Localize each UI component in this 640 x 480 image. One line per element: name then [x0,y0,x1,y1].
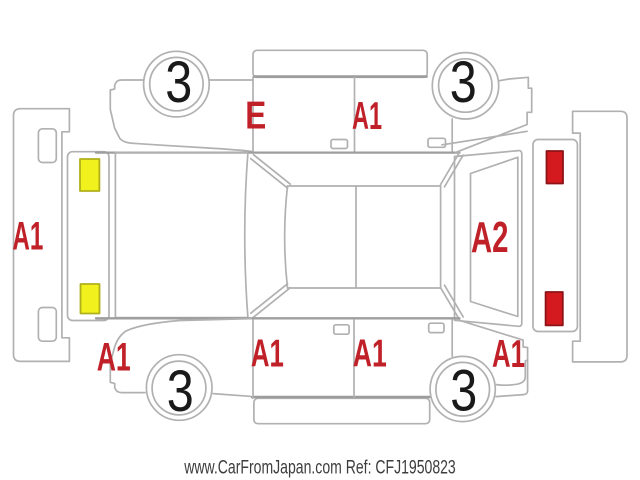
svg-text:3: 3 [165,50,192,115]
svg-text:3: 3 [167,359,194,424]
svg-text:A1: A1 [12,215,43,259]
svg-text:A1: A1 [352,95,382,138]
svg-text:A1: A1 [353,332,387,375]
svg-text:A1: A1 [97,336,131,380]
svg-text:A1: A1 [251,332,284,375]
svg-text:3: 3 [450,50,477,115]
svg-text:E: E [245,94,266,137]
svg-text:3: 3 [450,359,477,424]
svg-text:www.CarFromJapan.com Ref: CFJ1: www.CarFromJapan.com Ref: CFJ1950823 [184,458,456,479]
svg-text:A2: A2 [471,214,509,262]
svg-text:A1: A1 [492,333,525,376]
